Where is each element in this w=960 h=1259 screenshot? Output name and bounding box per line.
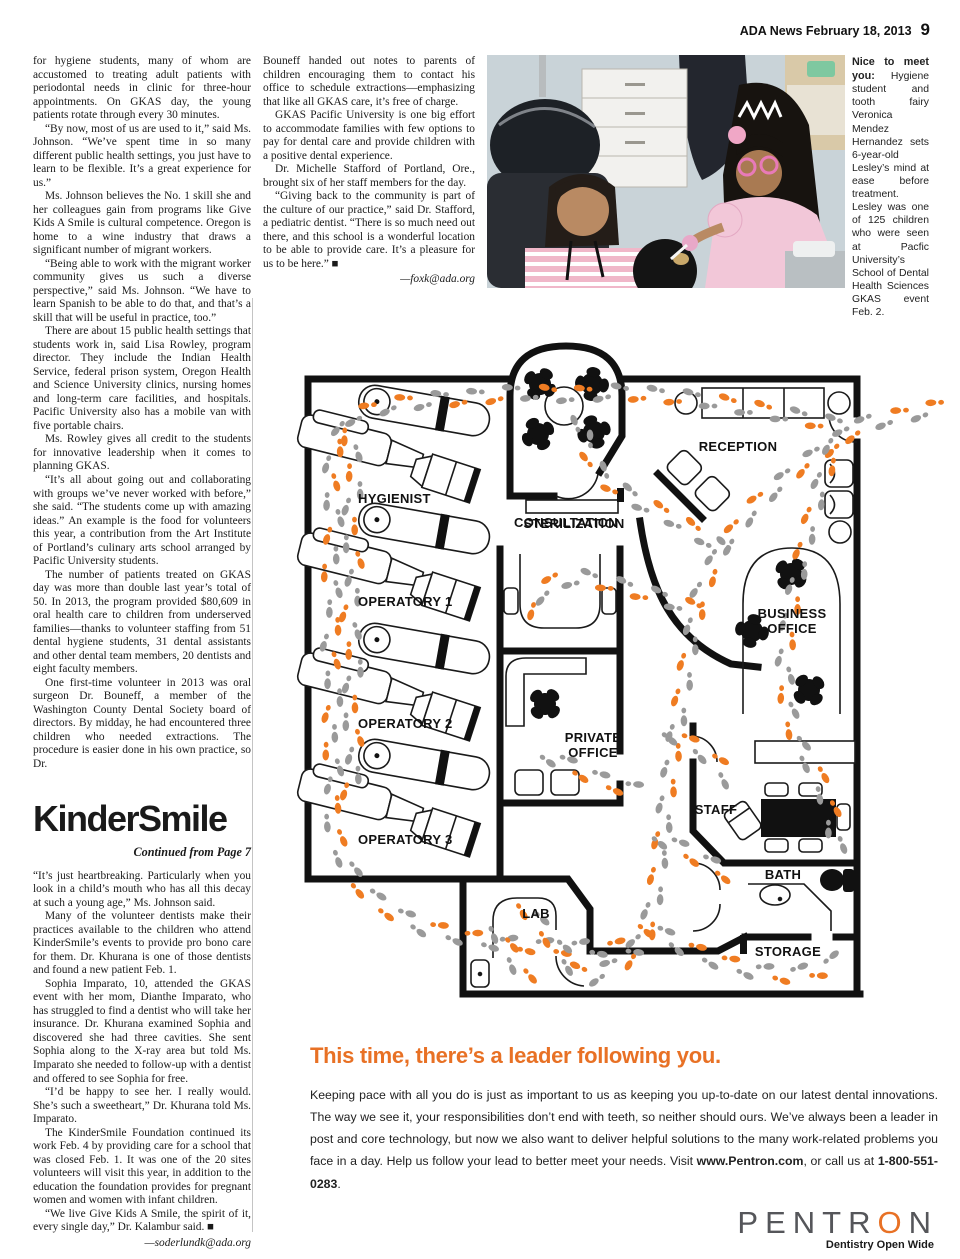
armchair — [693, 474, 732, 513]
footprint — [772, 467, 791, 482]
footprint — [627, 395, 646, 404]
footprint — [516, 945, 536, 956]
paragraph: Ms. Rowley gives all credit to the stude… — [33, 433, 251, 474]
footprint — [670, 779, 677, 798]
floorplan-ad: HYGIENIST OPERATORY 1 OPERATORY 2 OPERAT… — [288, 296, 948, 1038]
paragraph: Dr. Michelle Stafford of Portland, Ore.,… — [263, 163, 475, 190]
toilet-tank — [843, 869, 854, 892]
footprint — [791, 541, 804, 561]
footprint — [578, 450, 595, 469]
paragraph: Many of the volunteer dentists make thei… — [33, 910, 251, 978]
footprint — [777, 685, 785, 704]
label-operatory3: OPERATORY 3 — [358, 832, 453, 847]
logo-letters: N — [909, 1205, 938, 1240]
footprint — [805, 422, 824, 429]
ad-headline: This time, there’s a leader following yo… — [310, 1043, 938, 1069]
conference-chair — [799, 839, 822, 852]
footprint — [522, 967, 539, 986]
footprint — [591, 768, 611, 779]
label-reception: RECEPTION — [699, 439, 778, 454]
footprint — [734, 409, 753, 416]
footprint — [561, 579, 581, 590]
footprint — [323, 492, 331, 511]
label-business-1: BUSINESS — [758, 606, 827, 621]
label-lab: LAB — [522, 906, 550, 921]
footprint — [785, 666, 796, 686]
footprint — [787, 700, 801, 720]
footprint — [836, 835, 849, 855]
conference-table — [761, 799, 836, 837]
footprint — [599, 483, 619, 496]
footprint — [809, 471, 824, 491]
paragraph: “Giving back to the community is part of… — [263, 190, 475, 271]
paragraph: Ms. Johnson believes the No. 1 skill she… — [33, 190, 251, 258]
logo-wordmark: PENTRON — [310, 1205, 938, 1241]
footprint — [767, 485, 784, 504]
footprint — [320, 704, 332, 724]
footprint — [338, 603, 350, 623]
footprint — [659, 759, 671, 779]
footprint — [409, 923, 428, 939]
byline: —foxk@ada.org — [263, 273, 475, 287]
footprint — [686, 672, 693, 691]
footprint — [624, 932, 642, 949]
label-operatory2: OPERATORY 2 — [358, 716, 453, 731]
toilet-bowl — [820, 869, 844, 891]
logo-o: O — [877, 1205, 908, 1240]
label-private-1: PRIVATE — [565, 730, 622, 745]
footprint — [326, 599, 333, 618]
footprint — [587, 972, 606, 988]
footprint — [330, 472, 342, 492]
footprint — [682, 852, 701, 869]
footprint — [335, 828, 349, 848]
footprint — [625, 780, 644, 788]
masthead-title: ADA News February 18, 2013 — [740, 24, 912, 38]
kindersmile-headline: KinderSmile — [33, 801, 251, 837]
footprint — [789, 961, 809, 973]
byline: —soderlundk@ada.org — [33, 1237, 251, 1251]
footprint — [540, 571, 560, 586]
footprint — [784, 721, 793, 740]
footprint — [349, 881, 366, 900]
footprint — [717, 771, 731, 791]
footprint — [711, 752, 731, 767]
article-column-1: for hygiene students, many of whom are a… — [33, 55, 251, 1250]
footprint — [925, 399, 944, 406]
paragraph: “By now, most of us are used to it,” sai… — [33, 123, 251, 191]
footprint — [397, 907, 417, 919]
footprint — [708, 568, 719, 588]
paragraph: for hygiene students, many of whom are a… — [33, 55, 251, 123]
footprint — [744, 509, 759, 529]
masthead: ADA News February 18, 20139 — [740, 20, 930, 40]
footprint — [630, 503, 650, 515]
footprint — [822, 949, 841, 966]
footprint — [661, 850, 669, 869]
footprint — [607, 937, 627, 948]
door-post — [617, 488, 624, 502]
footprint — [639, 901, 652, 921]
page-number: 9 — [921, 20, 930, 39]
side-table — [828, 392, 850, 414]
footprint — [466, 388, 485, 396]
footprint — [534, 589, 551, 608]
paragraph: Sophia Imparato, 10, attended the GKAS e… — [33, 978, 251, 1086]
footprint — [331, 724, 338, 743]
footprint — [684, 595, 704, 610]
ad-body: Keeping pace with all you do is just as … — [310, 1084, 938, 1195]
black-furniture — [617, 488, 854, 954]
footprint — [652, 498, 671, 514]
pentron-logo: PENTRON Dentistry Open Wide — [310, 1205, 938, 1251]
footprint — [699, 403, 718, 410]
operatory-station — [291, 372, 492, 503]
logo-letters: PENTR — [737, 1205, 877, 1240]
footprint — [675, 743, 682, 762]
footprint — [646, 384, 666, 395]
footprint — [794, 461, 811, 480]
footprint — [809, 972, 828, 979]
office-chair — [784, 665, 834, 715]
armchair — [825, 491, 853, 518]
footprint — [735, 967, 755, 981]
column-divider — [252, 298, 253, 1232]
footprint — [671, 836, 691, 848]
footprint — [629, 593, 648, 601]
bath-door — [693, 904, 720, 931]
footprint — [323, 813, 331, 832]
photo-illustration — [487, 55, 845, 288]
label-storage: STORAGE — [755, 944, 821, 959]
floorplan-svg: HYGIENIST OPERATORY 1 OPERATORY 2 OPERAT… — [288, 296, 948, 1038]
footprint — [646, 866, 658, 886]
footprint — [657, 924, 677, 937]
footprint — [693, 536, 713, 549]
paragraph: The number of patients treated on GKAS d… — [33, 569, 251, 677]
conference-chair — [765, 783, 788, 796]
office-chair — [521, 680, 568, 727]
caption-text: Hygiene student and tooth fairy Veronica… — [852, 71, 929, 318]
footprint — [538, 753, 557, 769]
conference-chair — [765, 839, 788, 852]
footprint — [331, 849, 343, 869]
footprint — [890, 407, 909, 414]
footprint — [344, 746, 356, 766]
label-business-2: OFFICE — [767, 621, 816, 636]
footprint — [771, 974, 791, 986]
footprint — [321, 454, 333, 474]
footprint — [774, 648, 786, 668]
footprint — [654, 795, 666, 815]
footprint — [831, 425, 851, 439]
label-private-2: OFFICE — [568, 745, 617, 760]
footprint — [680, 708, 687, 727]
paragraph: “I’d be happy to see her. I really would… — [33, 1086, 251, 1127]
footprint — [485, 395, 505, 407]
waiting-chair — [515, 770, 543, 795]
footprint — [526, 601, 537, 621]
label-hygienist: HYGIENIST — [358, 491, 431, 506]
footprint — [700, 956, 719, 972]
footprint — [825, 820, 832, 839]
footprint — [342, 712, 349, 731]
door-post — [740, 935, 747, 954]
consultation-door — [556, 474, 598, 499]
logo-tagline: Dentistry Open Wide — [310, 1239, 938, 1251]
footprint — [430, 921, 449, 929]
label-staff: STAFF — [695, 802, 737, 817]
footprint — [657, 886, 664, 905]
footprint — [332, 579, 344, 599]
bath-door — [693, 863, 720, 890]
bath-sink — [760, 885, 790, 905]
label-sterilization-main: STERILIZATION — [523, 516, 624, 531]
article-column-2: Bouneff handed out notes to parents of c… — [263, 55, 475, 287]
paragraph: There are about 15 public health setting… — [33, 325, 251, 433]
footprint — [322, 742, 329, 761]
footprint — [368, 887, 387, 902]
paragraph: “It’s all about going out and collaborat… — [33, 474, 251, 569]
paragraph: “It’s just heartbreaking. Particularly w… — [33, 870, 251, 911]
footprint — [340, 497, 352, 517]
paragraph: GKAS Pacific University is one big effor… — [263, 109, 475, 163]
continued-from: Continued from Page 7 — [33, 845, 251, 859]
ad-url: www.Pentron.com — [697, 1154, 804, 1168]
footprint — [623, 952, 638, 972]
side-table — [829, 521, 851, 543]
footprint — [809, 526, 817, 545]
ad-body-text: . — [337, 1177, 340, 1191]
armchair — [665, 448, 704, 487]
label-operatory1: OPERATORY 1 — [358, 594, 453, 609]
sink — [602, 588, 616, 614]
photo-caption: Nice to meet you: Hygiene student and to… — [852, 56, 929, 319]
footprint — [910, 411, 930, 424]
paragraph: Bouneff handed out notes to parents of c… — [263, 55, 475, 109]
footprint — [703, 548, 719, 567]
footprint — [598, 957, 618, 968]
footprint — [801, 445, 821, 459]
footprint — [346, 463, 353, 482]
footprint — [688, 580, 704, 599]
paragraph: The KinderSmile Foundation continued its… — [33, 1127, 251, 1208]
label-bath: BATH — [765, 867, 801, 882]
footprint — [670, 688, 682, 708]
footprint — [816, 765, 831, 785]
footprint — [351, 517, 358, 536]
footprint — [675, 652, 687, 672]
footprint — [665, 814, 673, 833]
footprint — [465, 930, 484, 937]
footprint — [345, 641, 352, 660]
footprint — [721, 954, 740, 963]
footprint — [722, 518, 740, 535]
footprint — [799, 506, 813, 526]
footprint — [377, 906, 396, 922]
pentron-ad: This time, there’s a leader following yo… — [310, 1043, 938, 1251]
newspaper-page: ADA News February 18, 20139 for hygiene … — [0, 0, 960, 1259]
paragraph: One first-time volunteer in 2013 was ora… — [33, 677, 251, 772]
counter — [526, 500, 618, 513]
footprint — [579, 566, 599, 579]
footprint — [756, 963, 775, 970]
footprint — [745, 490, 764, 505]
paragraph: “We live Give Kids A Smile, the spirit o… — [33, 1208, 251, 1235]
sink — [504, 588, 518, 614]
footprint — [663, 519, 683, 531]
footprint — [874, 418, 894, 431]
footprint — [505, 956, 518, 976]
paragraph: “Being able to work with the migrant wor… — [33, 258, 251, 326]
ad-body-text: , or call us at — [803, 1154, 877, 1168]
private-office-desk — [506, 658, 586, 726]
news-photo — [487, 55, 845, 288]
